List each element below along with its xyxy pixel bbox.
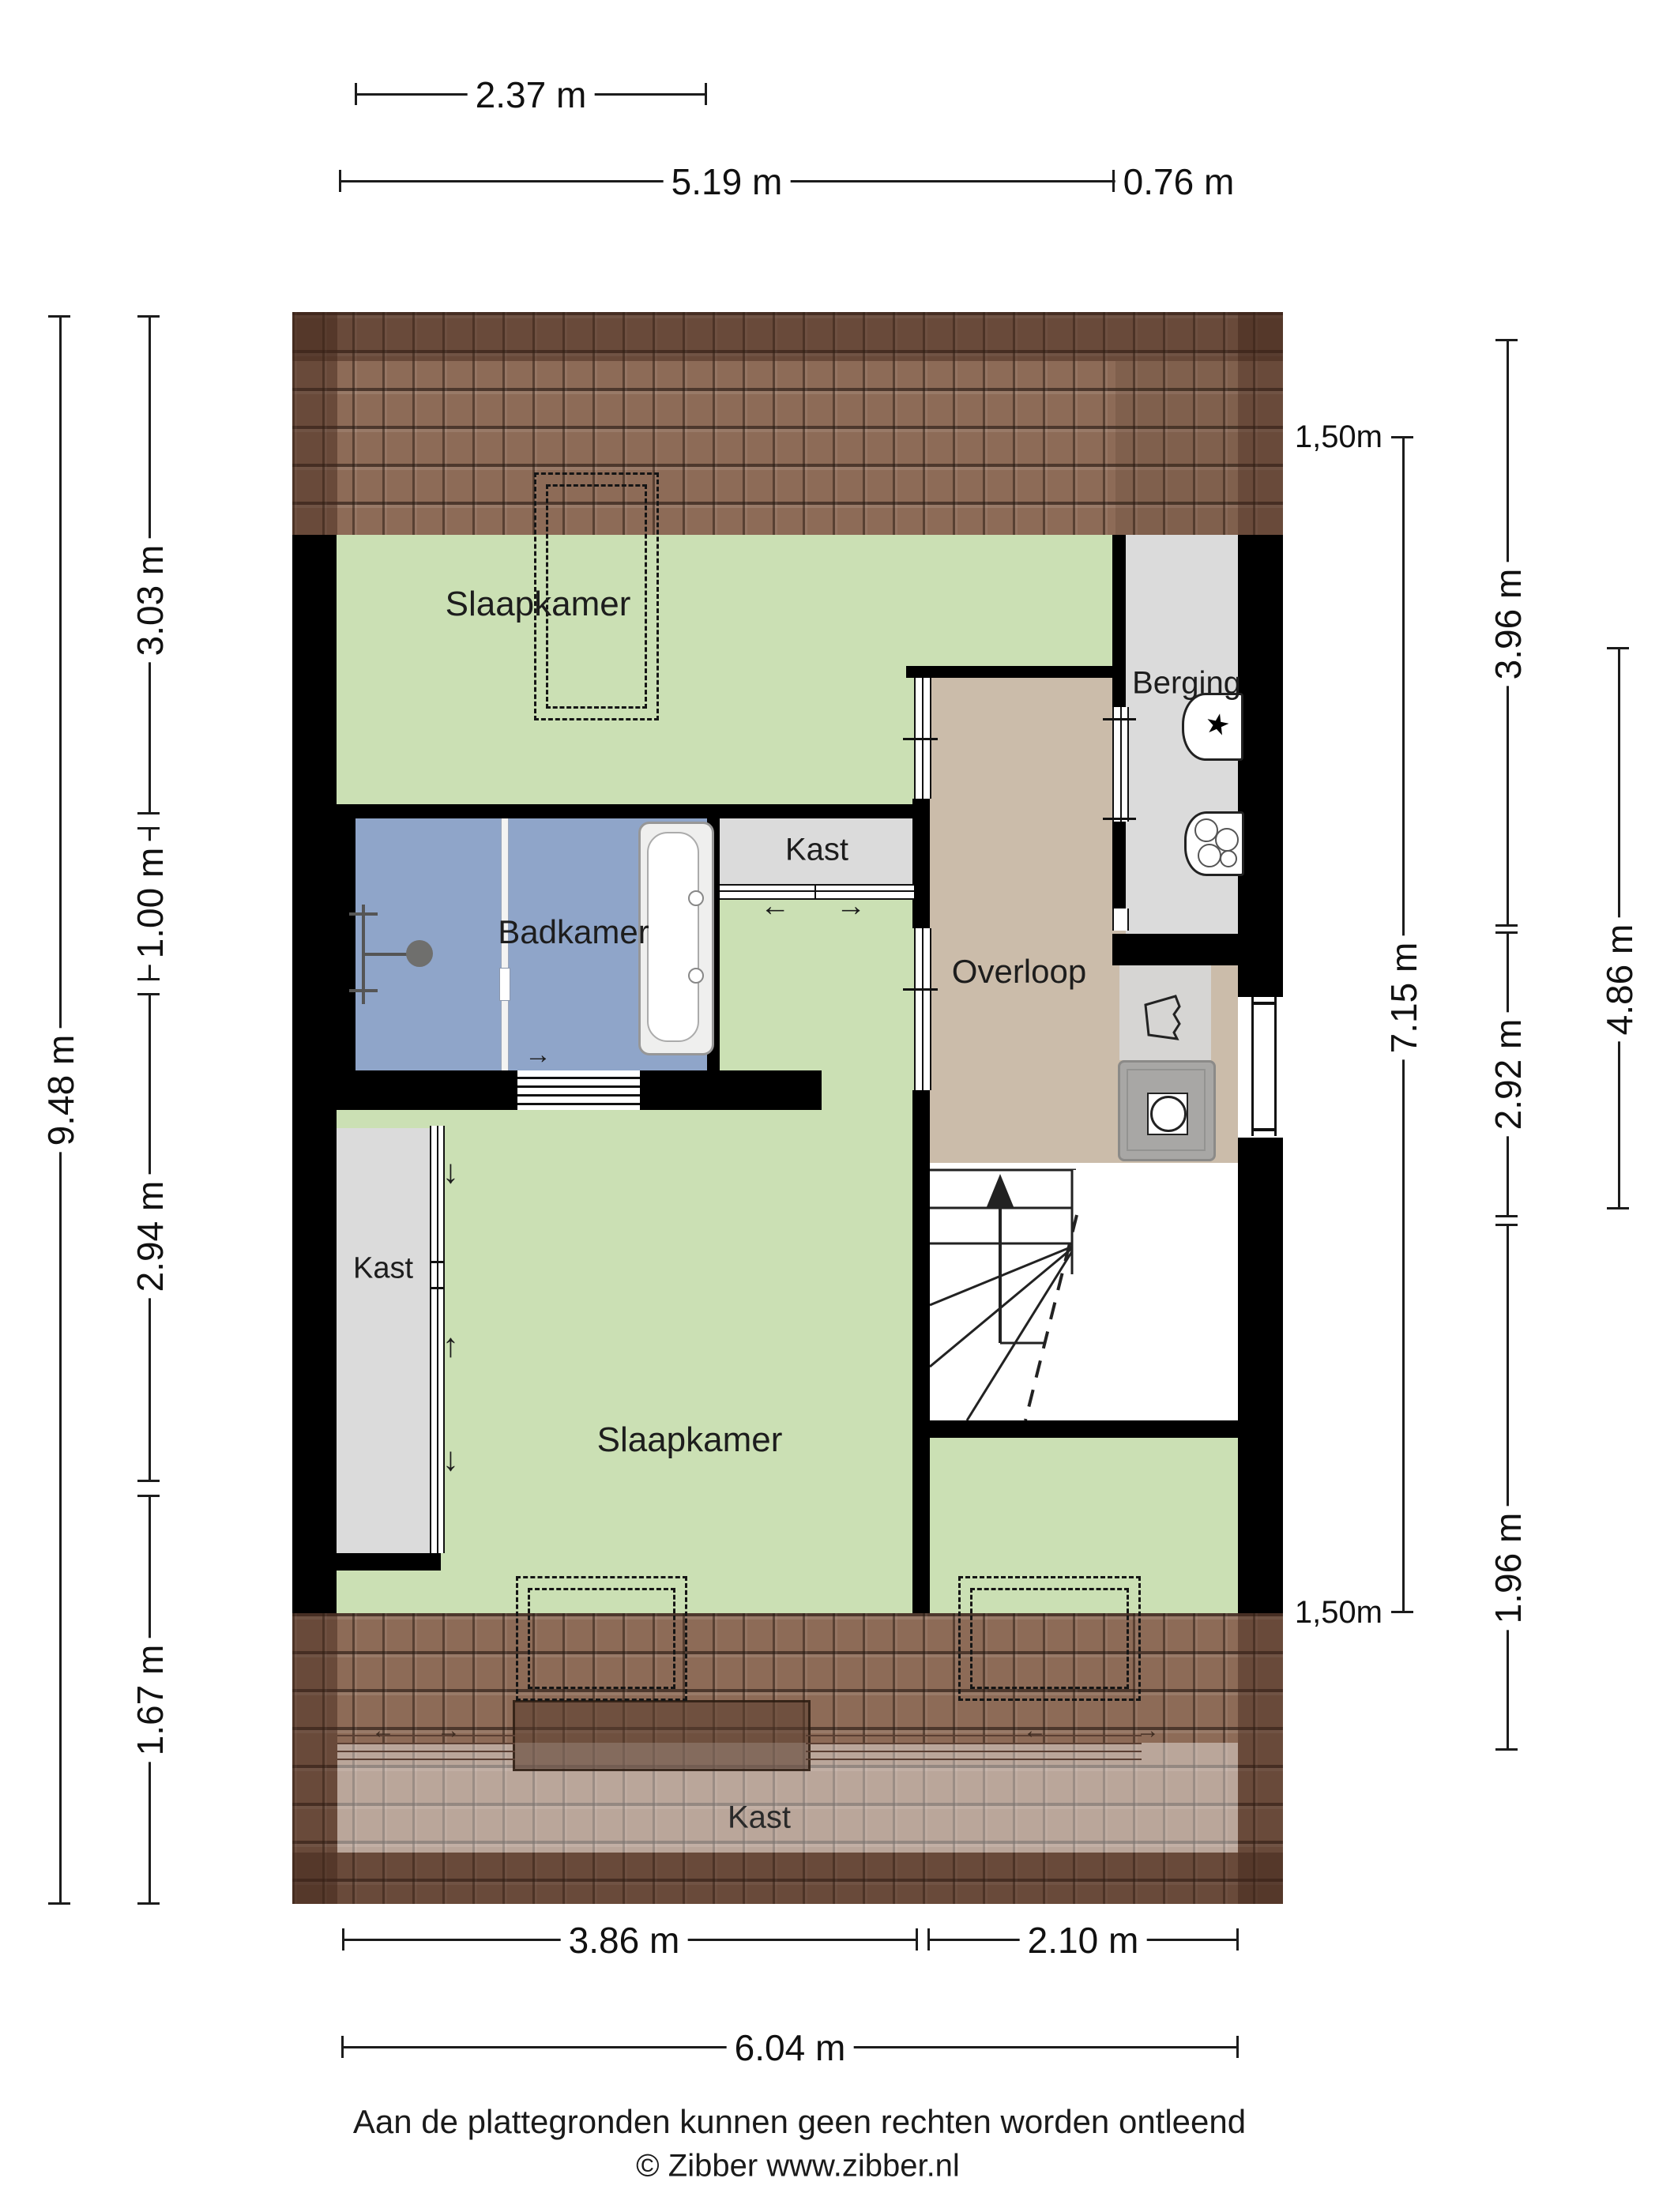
wall-tick-4 bbox=[1103, 818, 1136, 820]
dim-label-237: 2.37 m bbox=[468, 73, 595, 116]
dim-label-486: 4.86 m bbox=[1598, 918, 1641, 1042]
tick bbox=[1495, 1748, 1518, 1751]
tick bbox=[1391, 436, 1413, 438]
dim-label-948: 9.48 m bbox=[39, 1029, 82, 1153]
shower-bar-bottom bbox=[349, 989, 378, 992]
tick bbox=[137, 1480, 160, 1482]
tick bbox=[137, 315, 160, 318]
wall-left-outer bbox=[292, 535, 337, 1613]
footer-copyright: © Zibber www.zibber.nl bbox=[636, 2149, 960, 2184]
closet-slide-arrow-left-2: ← bbox=[1023, 1719, 1047, 1743]
dim-label-604: 6.04 m bbox=[727, 2026, 854, 2069]
tick bbox=[927, 1928, 930, 1951]
wall-stairs-bottom bbox=[914, 1420, 1238, 1438]
badkamer-door-arrow: → bbox=[525, 1041, 551, 1068]
closet-slide-arrow-right-1: → bbox=[437, 1719, 461, 1743]
tick bbox=[1236, 1928, 1239, 1951]
kast-left-arrow-down-1: ↓ bbox=[442, 1155, 459, 1188]
tick bbox=[48, 1902, 70, 1905]
kast-top-arrow-right: → bbox=[836, 891, 866, 921]
wall-divider-mid-lower bbox=[912, 1090, 930, 1613]
tick bbox=[1495, 931, 1518, 934]
room-kast-left bbox=[337, 1128, 431, 1553]
roof-bottom-left-edge bbox=[292, 1613, 337, 1904]
tick bbox=[342, 1928, 344, 1951]
washing-machine-drum bbox=[1150, 1096, 1187, 1132]
wall-badkamer-bottom-left bbox=[337, 1070, 517, 1110]
dim-label-076: 0.76 m bbox=[1115, 160, 1243, 203]
dryer-unit: ★ bbox=[1182, 693, 1243, 761]
dryer-icon: ★ bbox=[1202, 705, 1233, 743]
dim-label-386: 3.86 m bbox=[561, 1919, 688, 1962]
clothes-hook-icon bbox=[1140, 992, 1189, 1044]
bathtub-inner bbox=[647, 832, 699, 1042]
stairs bbox=[930, 1163, 1238, 1420]
door-overloop-berging bbox=[1112, 707, 1129, 822]
label-kast-top: Kast bbox=[785, 833, 848, 868]
stairs-bg bbox=[930, 1163, 1238, 1420]
dim-label-196: 1.96 m bbox=[1487, 1507, 1529, 1631]
tick bbox=[916, 1928, 918, 1951]
dim-label-210: 2.10 m bbox=[1020, 1919, 1147, 1962]
roof-bottom-eave bbox=[292, 1853, 1283, 1904]
wall-tick-3 bbox=[1103, 718, 1136, 720]
tick bbox=[1607, 1207, 1629, 1209]
roof-top-right-edge bbox=[1238, 312, 1283, 535]
tick bbox=[1495, 339, 1518, 341]
door-overloop-berging-small bbox=[1112, 908, 1129, 931]
height-marker-bottom: 1,50m bbox=[1288, 1595, 1389, 1630]
wall-badkamer-bottom-right bbox=[640, 1070, 822, 1110]
window-overloop-left-lower bbox=[914, 928, 931, 1090]
closet-track-left bbox=[337, 1735, 515, 1766]
wall-badkamer-left-thick bbox=[337, 818, 355, 1070]
dim-label-396: 3.96 m bbox=[1487, 562, 1529, 687]
window-right-wall bbox=[1251, 997, 1277, 1136]
tick bbox=[341, 2036, 344, 2058]
window-frame-bar-top bbox=[1254, 1002, 1274, 1005]
boiler-dial-4 bbox=[1220, 850, 1237, 867]
tick bbox=[137, 978, 160, 980]
dim-label-294: 2.94 m bbox=[129, 1175, 171, 1299]
dormer-bottom-left-inner bbox=[528, 1588, 675, 1689]
wall-berging-left-upper bbox=[1112, 535, 1126, 707]
tick bbox=[1495, 1224, 1518, 1226]
height-marker-top: 1,50m bbox=[1288, 419, 1389, 454]
roof-bottom-right-edge bbox=[1238, 1613, 1283, 1904]
dim-label-167: 1.67 m bbox=[129, 1638, 171, 1762]
door-handle-mark bbox=[431, 1261, 443, 1263]
room-overloop bbox=[930, 678, 1126, 1163]
dim-label-715: 7.15 m bbox=[1382, 936, 1425, 1060]
bathtub bbox=[638, 822, 714, 1055]
tick bbox=[1236, 2036, 1239, 2058]
window-glass-line bbox=[922, 928, 924, 1090]
wall-divider-mid-upper bbox=[912, 799, 930, 928]
tick bbox=[705, 83, 707, 105]
bathtub-faucet-1 bbox=[688, 890, 704, 906]
tick bbox=[1495, 1215, 1518, 1217]
label-overloop: Overloop bbox=[952, 953, 1086, 991]
tick bbox=[355, 83, 357, 105]
shower-head bbox=[406, 940, 433, 967]
bathtub-faucet-2 bbox=[688, 968, 704, 984]
washing-machine bbox=[1118, 1060, 1216, 1161]
wall-berging-bottom bbox=[1112, 934, 1239, 965]
label-badkamer: Badkamer bbox=[498, 913, 649, 951]
kast-left-arrow-up: ↑ bbox=[442, 1329, 459, 1362]
dim-label-519: 5.19 m bbox=[664, 160, 791, 203]
dim-label-100: 1.00 m bbox=[129, 841, 171, 965]
floorplan-canvas: ← → ← → ↓ ↑ ↓ bbox=[0, 0, 1659, 2212]
tick bbox=[137, 812, 160, 814]
door-panel-line bbox=[437, 1126, 438, 1553]
shower-glass-handle bbox=[499, 968, 510, 1001]
wall-badkamer-top bbox=[337, 804, 929, 818]
dim-line-196 bbox=[1507, 1224, 1509, 1750]
door-kast-top-sliding bbox=[720, 884, 914, 900]
wall-right-upper bbox=[1238, 535, 1283, 997]
roof-closet-dresser bbox=[513, 1700, 811, 1771]
wall-tick-1 bbox=[903, 738, 938, 740]
tick bbox=[137, 827, 160, 829]
shower-arm bbox=[363, 953, 409, 956]
wall-berging-left-mid bbox=[1112, 822, 1126, 908]
wall-tick-2 bbox=[903, 988, 938, 991]
label-kast-left: Kast bbox=[353, 1252, 413, 1286]
label-kast-bottom: Kast bbox=[728, 1800, 791, 1836]
footer-disclaimer: Aan de plattegronden kunnen geen rechten… bbox=[353, 2103, 1246, 2141]
dormer-bottom-right-inner bbox=[970, 1588, 1129, 1689]
roof-top-berging-shade bbox=[1115, 361, 1238, 535]
roof-top-left-edge bbox=[292, 312, 337, 535]
shower-bar-top bbox=[349, 912, 378, 916]
wall-right-lower bbox=[1238, 1138, 1283, 1613]
boiler-dial-3 bbox=[1198, 844, 1221, 867]
label-slaapkamer-bottom: Slaapkamer bbox=[597, 1420, 783, 1460]
closet-slide-arrow-right-2: → bbox=[1136, 1719, 1160, 1743]
window-frame-bar-bottom bbox=[1254, 1128, 1274, 1131]
label-berging: Berging bbox=[1132, 666, 1241, 702]
tick bbox=[339, 170, 341, 192]
door-handle-mark2 bbox=[431, 1287, 443, 1289]
kast-top-arrow-left: ← bbox=[760, 891, 790, 921]
door-split-mark bbox=[814, 886, 816, 898]
tick bbox=[1607, 647, 1629, 649]
tick bbox=[137, 993, 160, 995]
tick bbox=[137, 1902, 160, 1905]
tick bbox=[137, 1495, 160, 1497]
dim-label-303: 3.03 m bbox=[129, 539, 171, 663]
closet-slide-arrow-left-1: ← bbox=[371, 1719, 395, 1743]
label-slaapkamer-top: Slaapkamer bbox=[446, 585, 631, 624]
kast-left-arrow-down-2: ↓ bbox=[442, 1443, 459, 1476]
closet-track-right bbox=[806, 1735, 1142, 1766]
boiler-unit bbox=[1184, 811, 1244, 876]
dim-label-292: 2.92 m bbox=[1487, 1013, 1529, 1137]
door-rail-line bbox=[720, 890, 914, 892]
wall-overloop-top bbox=[906, 666, 1126, 678]
tick bbox=[1495, 924, 1518, 927]
door-glass-line bbox=[1120, 707, 1122, 822]
roof-top-ridge bbox=[292, 312, 1283, 361]
tick bbox=[48, 315, 70, 318]
door-badkamer-sliding bbox=[517, 1070, 640, 1110]
tick bbox=[1391, 1611, 1413, 1613]
wall-kast-left-bottom bbox=[337, 1553, 441, 1571]
